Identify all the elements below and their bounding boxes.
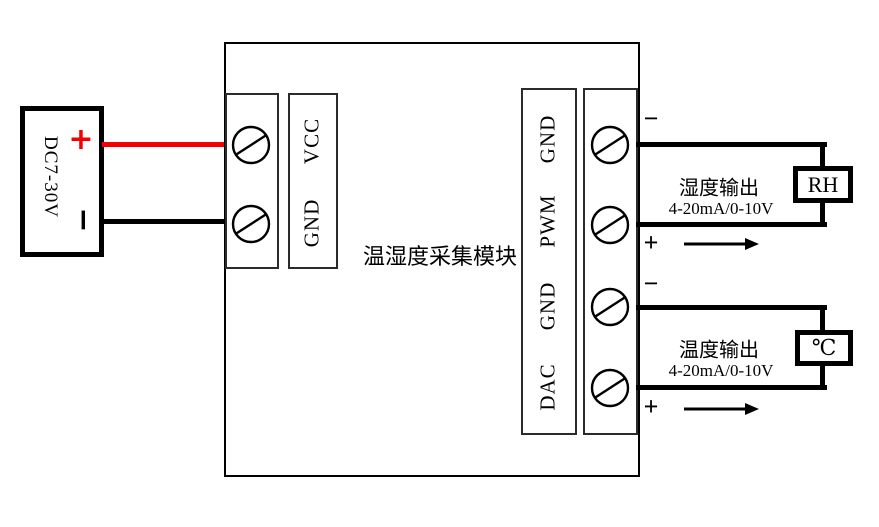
terminal-label-gnd: GND [536,115,561,164]
temperature-sensor-box: ℃ [795,330,853,366]
terminal-label-gnd: GND [536,282,561,331]
temperature-flow-arrow-icon [684,401,759,417]
screw-terminal-icon [590,125,630,165]
temperature-wire-top [636,305,827,310]
humidity-output-name: 湿度输出 [679,172,759,201]
screw-terminal-icon [231,125,271,165]
humidity-output-signal: 4-20mA/0-10V [669,199,774,219]
wiring-diagram: DC7-30V + − 温湿度采集模块 VCC GND GND PWM GND … [0,0,879,527]
screw-terminal-icon [590,368,630,408]
screw-terminal-icon [590,287,630,327]
terminal-label-gnd: GND [300,199,325,248]
temperature-output-name: 温度输出 [679,334,759,363]
module-title: 温湿度采集模块 [363,239,517,271]
negative-supply-wire [102,219,227,224]
screw-terminal-icon [590,205,630,245]
power-supply-label: DC7-30V [39,136,61,218]
humidity-flow-arrow-icon [684,236,759,252]
power-supply-box: DC7-30V + − [20,106,104,257]
terminal-label-pwm: PWM [536,194,561,247]
temperature-output-signal: 4-20mA/0-10V [669,361,774,381]
humidity-plus-label: + [644,230,659,256]
screw-terminal-icon [231,204,271,244]
humidity-minus-label: − [644,106,659,132]
terminal-label-dac: DAC [536,363,561,410]
temperature-minus-label: − [644,271,659,297]
temperature-sensor-label: ℃ [812,335,837,361]
power-negative-terminal-label: − [68,207,98,232]
temperature-wire-bottom [636,385,827,390]
humidity-sensor-label: RH [808,172,839,198]
power-positive-terminal-label: + [68,125,93,155]
humidity-wire-bottom [636,222,827,227]
humidity-wire-top [636,142,827,147]
terminal-label-vcc: VCC [300,118,325,164]
positive-supply-wire [102,142,227,147]
temperature-plus-label: + [644,394,659,420]
humidity-sensor-box: RH [793,166,853,203]
